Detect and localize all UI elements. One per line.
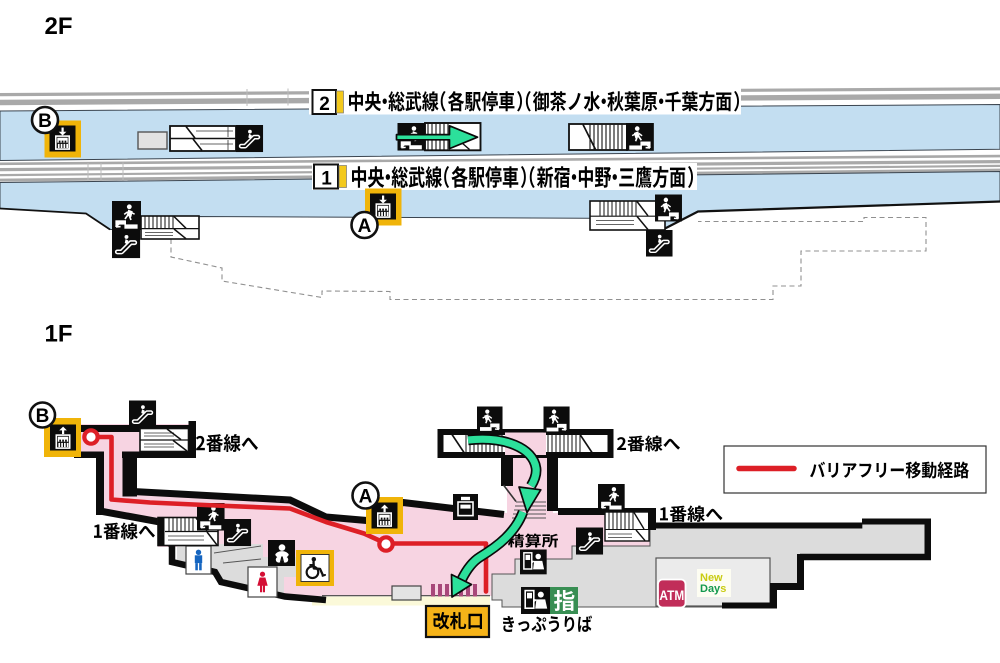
svg-text:1: 1 xyxy=(321,169,332,190)
svg-text:B: B xyxy=(36,406,50,427)
svg-text:2F: 2F xyxy=(45,13,73,40)
svg-text:1F: 1F xyxy=(45,321,73,348)
svg-text:A: A xyxy=(359,487,373,508)
svg-text:ATM: ATM xyxy=(659,587,684,603)
svg-text:B: B xyxy=(38,111,52,132)
svg-text:2: 2 xyxy=(319,94,330,115)
svg-text:A: A xyxy=(358,216,372,237)
svg-text:Days: Days xyxy=(700,583,726,595)
